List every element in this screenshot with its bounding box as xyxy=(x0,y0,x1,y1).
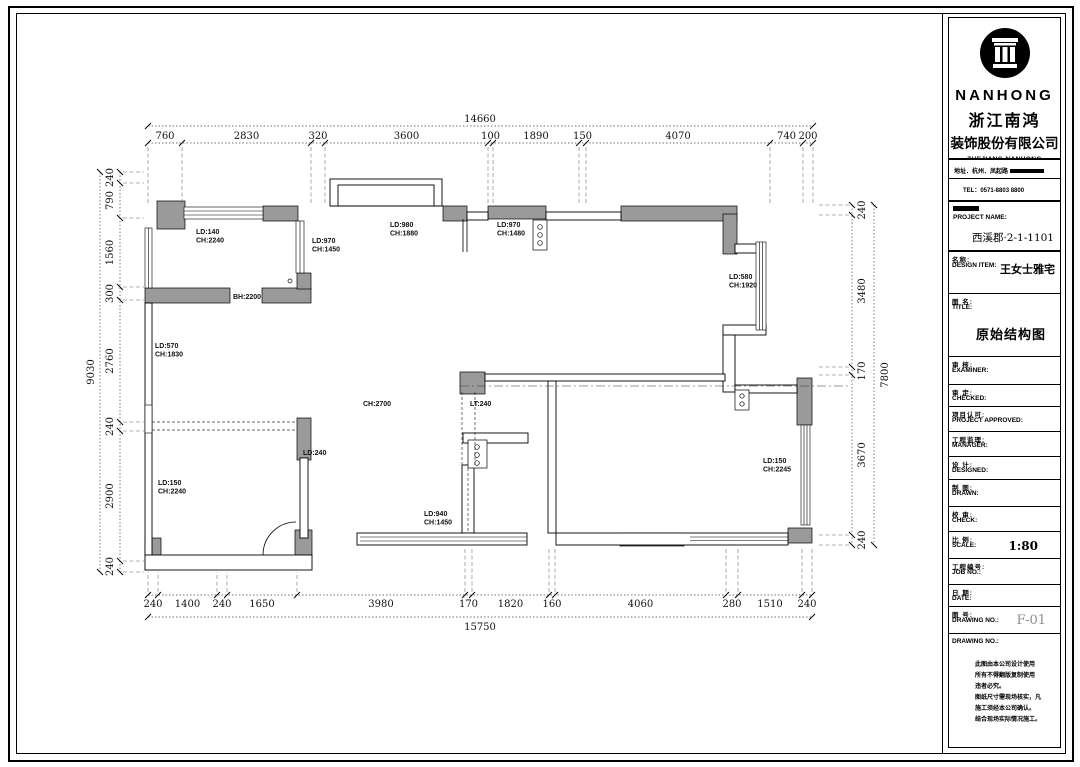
dim-tick xyxy=(97,569,103,575)
wall-horiz-mid xyxy=(485,374,725,381)
dim-tick xyxy=(552,592,558,598)
dim-label: 300 xyxy=(105,284,116,303)
notes-header: DRAWING NO.: xyxy=(952,638,999,645)
dim-label: 170 xyxy=(857,361,868,380)
window xyxy=(184,207,263,219)
dim-label: 160 xyxy=(542,599,561,610)
dim-label: 320 xyxy=(308,131,327,142)
manager-row: 工程监理: MANAGER: xyxy=(949,431,1060,456)
dim-label: 3980 xyxy=(368,599,393,610)
dim-tick xyxy=(117,215,123,221)
title-value: 原始结构图 xyxy=(976,324,1046,343)
title-block: NANHONG 浙江南鸿 装饰股份有限公司 ZHEJIANG NANHONG I… xyxy=(942,13,1066,753)
wall-bottom-right xyxy=(556,533,788,545)
dim-label: 4070 xyxy=(665,131,690,142)
design-item-value: 王女士雅宅 xyxy=(1000,261,1055,277)
wall-vert-left xyxy=(300,458,308,538)
dim-tick xyxy=(145,614,151,620)
wall-label: LD:140CH:2240 xyxy=(196,229,224,245)
dim-label: 790 xyxy=(105,191,116,210)
dim-label: 240 xyxy=(143,599,162,610)
wall-thin xyxy=(467,212,488,220)
wall-seg-right xyxy=(797,378,812,425)
dim-label: 4060 xyxy=(628,599,653,610)
scale-row: 比 例: SCALE: 1:80 xyxy=(949,531,1060,558)
fixture-hooks xyxy=(735,390,749,410)
dim-label: 3480 xyxy=(857,278,868,303)
dwg-label-en: DRAWING NO.: xyxy=(952,617,999,624)
fixture-hooks xyxy=(468,440,487,468)
tel-text: TEL：0571-8803 8800 xyxy=(963,185,1024,194)
entry-porch-inner xyxy=(338,185,434,206)
dim-tick xyxy=(145,123,151,129)
dim-tick xyxy=(145,140,151,146)
company-name-cn-1: 浙江南鸿 xyxy=(949,107,1060,131)
drawn-row: 制 图: DRAWN: xyxy=(949,479,1060,506)
fixture-hooks xyxy=(533,220,547,250)
dim-label: 200 xyxy=(798,131,817,142)
dim-label: 240 xyxy=(857,530,868,549)
approved-row: 项目认可: PROJECT APPROVED: xyxy=(949,406,1060,431)
checked-row: 审 定: CHECKED: xyxy=(949,384,1060,406)
drawn-label-en: DRAWN: xyxy=(952,490,979,497)
dim-tick xyxy=(849,542,855,548)
wall-vert-mid xyxy=(548,381,556,533)
wall-label: LD:940CH:1450 xyxy=(424,511,452,527)
dim-tick xyxy=(723,592,729,598)
wall-vert xyxy=(723,335,735,392)
floor-plan: 7602830320360010018901504070740200240140… xyxy=(0,0,940,767)
dim-total-label: 15750 xyxy=(464,622,496,633)
title-block-box: NANHONG 浙江南鸿 装饰股份有限公司 ZHEJIANG NANHONG I… xyxy=(948,17,1061,748)
wall-label: LD:580CH:1920 xyxy=(729,274,757,290)
dim-label: 1560 xyxy=(105,240,116,265)
wall-label: LT:240 xyxy=(470,401,491,408)
dim-total-label: 7800 xyxy=(880,362,891,387)
title-label-en: TITLE: xyxy=(952,304,972,311)
dim-label: 240 xyxy=(797,599,816,610)
wall-junction xyxy=(460,372,485,394)
approved-label-en: PROJECT APPROVED: xyxy=(952,417,1023,424)
date-label-en: DATE: xyxy=(952,595,971,602)
column-logo-icon xyxy=(978,26,1032,80)
designed-row: 设 计: DESIGNED: xyxy=(949,456,1060,479)
door-arc xyxy=(263,522,296,555)
wall-label: LD:150CH:2245 xyxy=(763,458,791,474)
dim-label: 2900 xyxy=(105,483,116,508)
window xyxy=(756,242,766,330)
wall-label: LD:970CH:1480 xyxy=(497,222,525,238)
project-name-value: 西溪郡·2-1-1101 xyxy=(972,230,1054,245)
scale-value: 1:80 xyxy=(1009,539,1038,553)
check-label-en: CHECK: xyxy=(952,517,977,524)
scale-label-en: SCALE: xyxy=(952,542,976,549)
wall-label: LD:980CH:1880 xyxy=(390,222,418,238)
wall-beam-left xyxy=(145,288,230,303)
dim-label: 760 xyxy=(155,131,174,142)
title-row: 图 名: TITLE: 原始结构图 xyxy=(949,293,1060,356)
dim-tick xyxy=(871,202,877,208)
wall-seg xyxy=(488,206,546,219)
dim-tick xyxy=(871,542,877,548)
dim-label: 2830 xyxy=(234,131,259,142)
address-redaction-bar xyxy=(1010,169,1044,173)
wall-thin xyxy=(546,212,621,220)
dim-label: 240 xyxy=(212,599,231,610)
wall-label: LD:970CH:1450 xyxy=(312,238,340,254)
dim-label: 3600 xyxy=(394,131,419,142)
dim-label: 2760 xyxy=(105,348,116,373)
wall-seg xyxy=(263,206,298,221)
design-item-label-en: DESIGN ITEM: xyxy=(952,262,996,269)
wall-label: CH:2700 xyxy=(363,401,391,408)
tel-row: TEL：0571-8803 8800 xyxy=(949,178,1060,200)
dim-tick xyxy=(145,592,151,598)
walls-gray xyxy=(145,201,812,570)
dim-tick xyxy=(849,532,855,538)
dim-label: 1510 xyxy=(757,599,782,610)
dim-label: 240 xyxy=(105,417,116,436)
dim-total-label: 14660 xyxy=(464,114,496,125)
wall-corner-bottomright xyxy=(788,528,812,543)
checked-label-en: CHECKED: xyxy=(952,395,986,402)
dim-label: 1820 xyxy=(498,599,523,610)
dim-label: 170 xyxy=(459,599,478,610)
notes-text: 此图由本公司设计使用 所有不得翻版复制使用 违者必究。 图纸尺寸需现场核实，凡 … xyxy=(975,660,1041,726)
dim-label: 150 xyxy=(573,131,592,142)
wall-label: LD:570CH:1830 xyxy=(155,343,183,359)
wall-beam-step xyxy=(297,273,311,289)
project-bar xyxy=(953,206,979,211)
window xyxy=(801,425,810,525)
dim-label: 740 xyxy=(777,131,796,142)
dim-label: 1890 xyxy=(523,131,548,142)
company-name-cn-2: 装饰股份有限公司 xyxy=(949,132,1060,152)
project-name-label: PROJECT NAME: xyxy=(953,214,1007,221)
design-item-row: 名称: DESIGN ITEM: 王女士雅宅 xyxy=(949,250,1060,293)
window xyxy=(145,228,152,288)
dwg-number-value: F-01 xyxy=(1017,613,1046,628)
company-name-en: NANHONG xyxy=(949,87,1060,104)
dim-label: 240 xyxy=(105,557,116,576)
wall-corner-topleft xyxy=(157,201,185,229)
check-row: 校 审: CHECK: xyxy=(949,506,1060,531)
dim-label: 3670 xyxy=(857,442,868,467)
dim-tick xyxy=(117,569,123,575)
fixture-dot xyxy=(288,279,292,283)
examiner-row: 审 核: EXAMINER: xyxy=(949,356,1060,384)
dim-label: 240 xyxy=(857,200,868,219)
fixtures xyxy=(288,220,749,468)
address-text: 地址．杭州．凤起路 xyxy=(954,166,1044,175)
dim-label: 280 xyxy=(722,599,741,610)
wall-bottom-left xyxy=(145,555,312,570)
wall-label: LD:150CH:2240 xyxy=(158,480,186,496)
wall-seg xyxy=(621,206,737,221)
dim-tick xyxy=(117,558,123,564)
wall-label: LD:240 xyxy=(303,450,326,457)
designed-label-en: DESIGNED: xyxy=(952,467,988,474)
dim-total-label: 9030 xyxy=(86,359,97,384)
job-row: 工程编号: JOB NO.: xyxy=(949,558,1060,584)
company-logo xyxy=(949,18,1060,85)
dim-label: 240 xyxy=(105,168,116,187)
project-name-row: PROJECT NAME: 西溪郡·2-1-1101 xyxy=(949,200,1060,250)
wall-seg xyxy=(443,206,467,221)
wall-bottom-mid xyxy=(357,533,527,545)
date-row: 日 期: DATE: xyxy=(949,584,1060,606)
address-row: 地址．杭州．凤起路 xyxy=(949,158,1060,178)
dim-tick xyxy=(117,169,123,175)
dim-tick xyxy=(849,202,855,208)
notes-row: DRAWING NO.: 此图由本公司设计使用 所有不得翻版复制使用 违者必究。… xyxy=(949,633,1060,747)
company-section: NANHONG 浙江南鸿 装饰股份有限公司 ZHEJIANG NANHONG I… xyxy=(949,18,1060,158)
wall-thin xyxy=(735,244,757,253)
address-value: 地址．杭州．凤起路 xyxy=(954,169,1008,175)
dim-label: 1650 xyxy=(249,599,274,610)
drawing-sheet: 7602830320360010018901504070740200240140… xyxy=(0,0,1080,767)
dim-label: 1400 xyxy=(175,599,200,610)
dim-tick xyxy=(97,169,103,175)
dim-label: 100 xyxy=(481,131,500,142)
examiner-label-en: EXAMINER: xyxy=(952,367,988,374)
dim-tick xyxy=(849,364,855,370)
manager-label-en: MANAGER: xyxy=(952,442,988,449)
job-label-en: JOB NO.: xyxy=(952,569,981,576)
dwg-row: 图 号: DRAWING NO.: F-01 xyxy=(949,606,1060,633)
window xyxy=(145,405,152,433)
dim-tick xyxy=(117,180,123,186)
window xyxy=(296,221,304,273)
wall-label: BH:2200 xyxy=(233,294,261,301)
wall-beam-right xyxy=(262,288,311,303)
